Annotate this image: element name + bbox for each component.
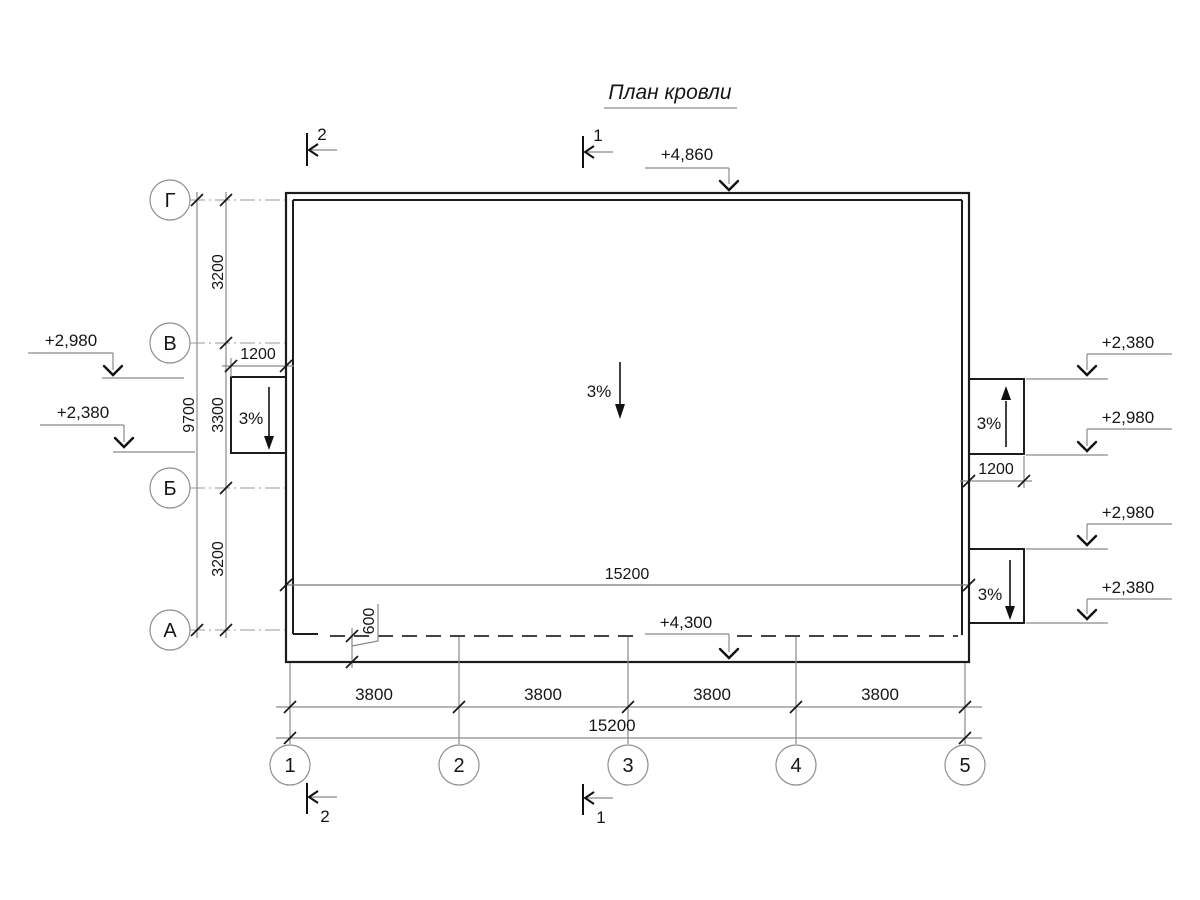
bottom-dimension-lines: 3800 3800 3800 3800 15200 <box>276 685 982 738</box>
dim-row-span-3: 3200 <box>210 541 227 577</box>
section-label: 1 <box>593 126 602 145</box>
section-mark-top-2: 2 <box>307 125 337 166</box>
left-dimension-lines: 3200 3300 3200 9700 <box>181 192 227 638</box>
elevation-right-1: +2,380 <box>1026 333 1172 379</box>
left-canopy-slope-label: 3% <box>239 409 264 428</box>
dim-col-span-2: 3800 <box>524 685 562 704</box>
section-label: 2 <box>317 125 326 144</box>
grid-col-label: 3 <box>622 755 633 777</box>
section-label: 2 <box>320 807 329 826</box>
section-label: 1 <box>596 808 605 827</box>
elevation-ridge-value: +4,860 <box>661 145 713 164</box>
elevation-left-upper: +2,980 <box>28 331 184 378</box>
dim-col-span-3: 3800 <box>693 685 731 704</box>
dim-canopy-left: 1200 <box>240 346 276 363</box>
dim-roof-width: 15200 <box>605 566 650 583</box>
section-mark-top-1: 1 <box>583 126 613 168</box>
roof-plan-drawing: План кровли 3% 3% 3% 3% <box>0 0 1200 900</box>
grid-col-label: 1 <box>284 755 295 777</box>
grid-col-label: 4 <box>790 755 801 777</box>
grid-row-label: А <box>163 620 177 642</box>
elevation-right-2: +2,980 <box>1026 408 1172 455</box>
main-slope: 3% <box>587 362 625 419</box>
roof-outline <box>286 193 969 662</box>
grid-col-label: 5 <box>959 755 970 777</box>
down-arrow-icon <box>1005 606 1015 620</box>
elevation-value: +2,380 <box>57 403 109 422</box>
dim-col-span-1: 3800 <box>355 685 393 704</box>
dim-row-span-2: 3300 <box>210 397 227 433</box>
elevation-ridge: +4,860 <box>645 145 738 190</box>
section-mark-bottom-2: 2 <box>307 783 337 826</box>
section-mark-bottom-1: 1 <box>583 784 613 827</box>
roof-plan-page: План кровли 3% 3% 3% 3% <box>0 0 1200 900</box>
elevation-right-4: +2,380 <box>1026 578 1172 623</box>
right-upper-canopy-slope-label: 3% <box>977 414 1002 433</box>
grid-row-label: Б <box>163 478 176 500</box>
dim-row-total: 9700 <box>181 397 198 433</box>
elevation-value: +2,980 <box>45 331 97 350</box>
right-upper-canopy-slope: 3% <box>977 386 1011 447</box>
left-canopy-slope: 3% <box>239 387 274 450</box>
drawing-title: План кровли <box>608 81 732 104</box>
elevation-value: +2,980 <box>1102 408 1154 427</box>
dim-row-span-1: 3200 <box>210 254 227 290</box>
elevation-eaves: +4,300 <box>645 613 738 658</box>
right-lower-canopy-slope-label: 3% <box>978 585 1003 604</box>
grid-bubbles-bottom: 1 2 3 4 5 <box>270 745 985 785</box>
grid-row-label: Г <box>165 190 176 212</box>
dim-canopy-right: 1200 <box>978 461 1014 478</box>
main-slope-label: 3% <box>587 382 612 401</box>
dim-col-total: 15200 <box>588 716 635 735</box>
dim-col-span-4: 3800 <box>861 685 899 704</box>
elevation-right-3: +2,980 <box>1026 503 1172 549</box>
elevation-eaves-value: +4,300 <box>660 613 712 632</box>
grid-col-label: 2 <box>453 755 464 777</box>
elevation-left-lower: +2,380 <box>40 403 195 452</box>
up-arrow-icon <box>1001 386 1011 400</box>
grid-row-label: В <box>163 333 176 355</box>
elevation-value: +2,380 <box>1102 578 1154 597</box>
down-arrow-icon <box>615 404 625 419</box>
dim-overhang: 600 <box>361 608 378 635</box>
right-lower-canopy-slope: 3% <box>978 560 1015 620</box>
elevation-value: +2,980 <box>1102 503 1154 522</box>
down-arrow-icon <box>264 436 274 450</box>
elevation-value: +2,380 <box>1102 333 1154 352</box>
roof-width-dimension: 15200 <box>286 566 969 585</box>
left-canopy-dimension: 1200 <box>222 346 294 377</box>
